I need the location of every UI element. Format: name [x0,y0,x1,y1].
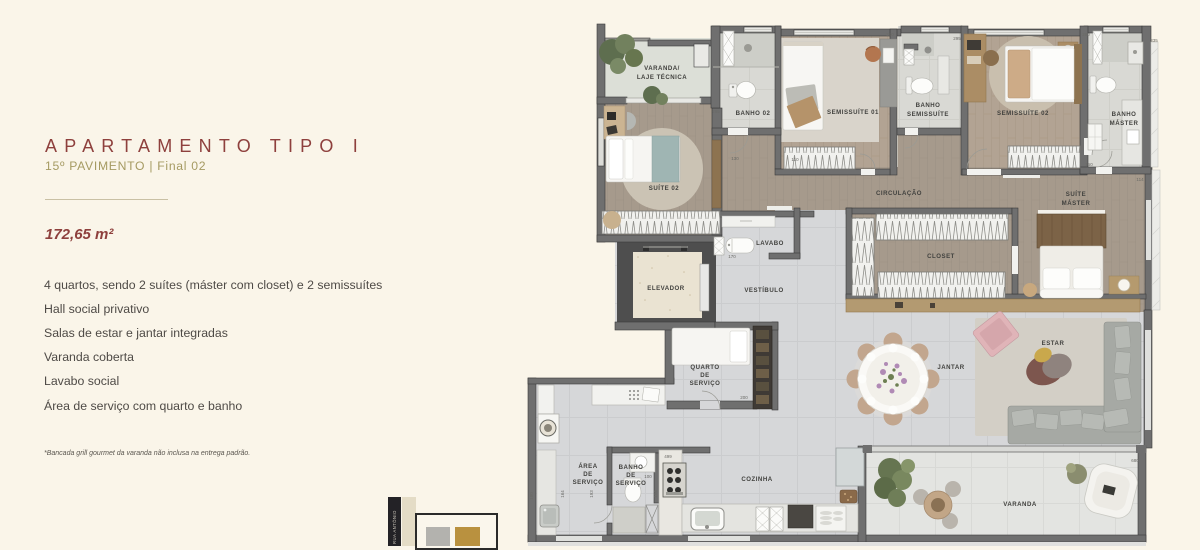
svg-text:JANTAR: JANTAR [937,364,964,371]
svg-text:SUÍTE 02: SUÍTE 02 [649,184,680,192]
svg-text:ESTAR: ESTAR [1042,340,1065,347]
svg-text:200: 200 [740,395,748,400]
svg-text:SEMISSUÍTE 02: SEMISSUÍTE 02 [997,109,1049,117]
svg-text:BANHO: BANHO [916,102,941,109]
svg-text:SEMISSUÍTE: SEMISSUÍTE [907,110,949,118]
svg-text:SERVIÇO: SERVIÇO [690,380,721,387]
svg-text:110: 110 [791,157,799,162]
svg-text:DE: DE [583,471,592,478]
svg-text:SERVIÇO: SERVIÇO [573,479,604,486]
svg-text:180: 180 [529,492,534,500]
svg-text:MÁSTER: MÁSTER [1062,200,1091,207]
svg-text:BANHO: BANHO [619,464,644,471]
svg-text:ELEVADOR: ELEVADOR [647,285,685,292]
svg-text:CIRCULAÇÃO: CIRCULAÇÃO [876,190,922,197]
svg-text:LAJE TÉCNICA: LAJE TÉCNICA [637,73,687,81]
svg-text:680: 680 [1131,458,1139,463]
svg-text:COZINHA: COZINHA [741,476,772,483]
svg-text:VARANDA/: VARANDA/ [644,65,680,72]
svg-text:295: 295 [953,36,961,41]
svg-text:MÁSTER: MÁSTER [1110,120,1139,127]
svg-text:LAVABO: LAVABO [756,240,784,247]
svg-text:QUARTO: QUARTO [690,364,719,371]
svg-text:196: 196 [653,490,658,498]
svg-text:ÁREA: ÁREA [578,463,597,470]
svg-text:SUÍTE: SUÍTE [1066,190,1086,198]
svg-text:VARANDA: VARANDA [1003,501,1037,508]
svg-text:SERVIÇO: SERVIÇO [616,480,647,487]
svg-text:265: 265 [712,109,720,114]
svg-text:CLOSET: CLOSET [927,253,955,260]
svg-text:BANHO 02: BANHO 02 [736,110,771,117]
svg-text:290: 290 [1082,32,1090,37]
svg-text:100: 100 [644,474,652,479]
svg-text:130: 130 [731,156,739,161]
svg-text:193: 193 [589,490,594,498]
svg-text:499: 499 [664,454,672,459]
svg-text:150: 150 [1085,162,1093,167]
svg-text:170: 170 [728,254,736,259]
svg-text:DE: DE [626,472,635,479]
svg-text:164: 164 [560,490,565,498]
svg-text:114: 114 [1136,177,1144,182]
svg-text:BANHO: BANHO [1112,111,1137,118]
svg-text:335: 335 [1150,38,1158,43]
svg-text:SEMISSUÍTE 01: SEMISSUÍTE 01 [827,108,879,116]
svg-text:DE: DE [700,372,709,379]
svg-text:290: 290 [886,32,894,37]
svg-text:VESTÍBULO: VESTÍBULO [744,286,783,294]
